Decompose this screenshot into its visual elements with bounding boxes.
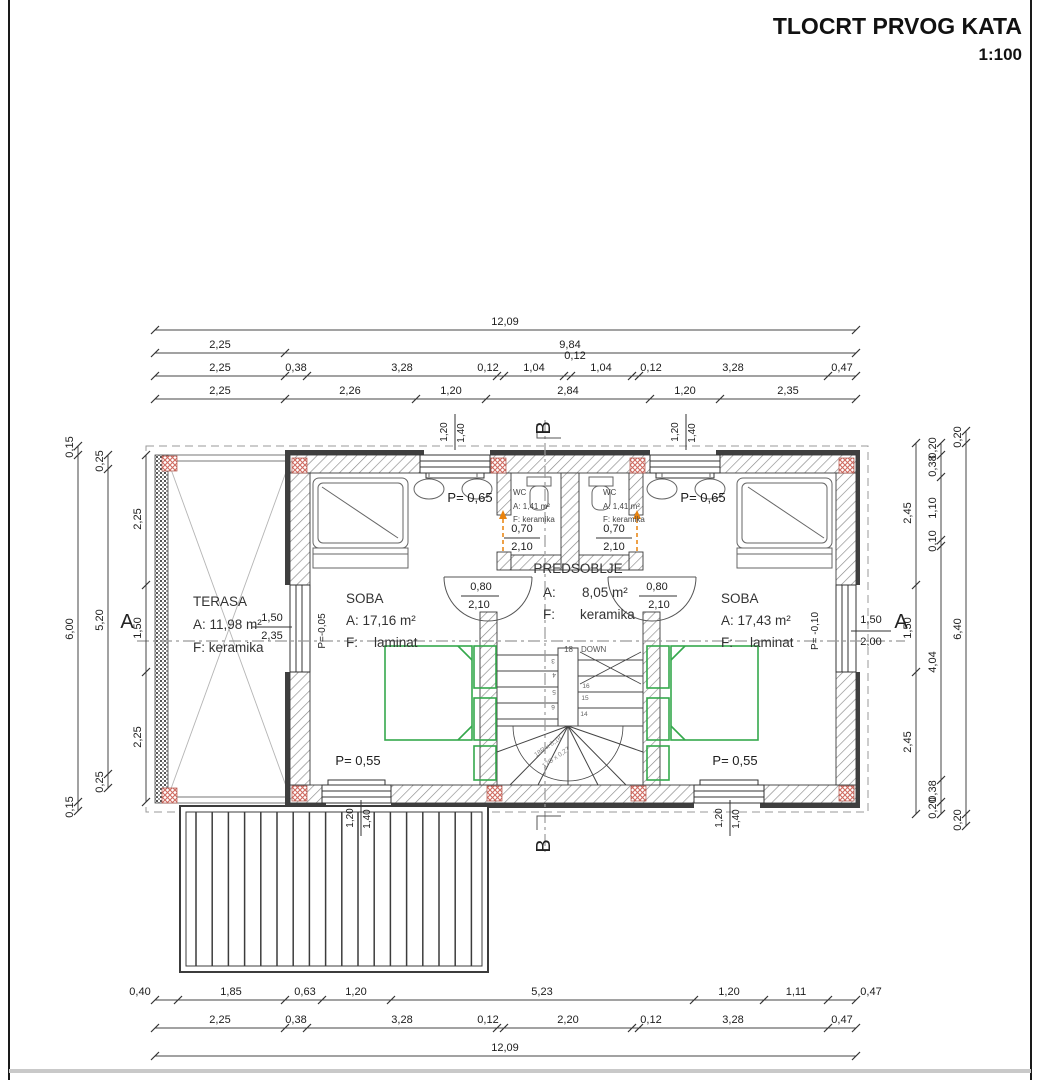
dim-chain: 0,206,400,20: [952, 426, 970, 830]
dim-label: 0,20: [952, 426, 964, 447]
dim-label: 1,20: [440, 385, 461, 397]
dim-label: 1,50: [860, 614, 881, 626]
bed-left: [385, 646, 496, 780]
stair-step-number: 14: [580, 711, 588, 718]
stair-count-label: 18: [564, 645, 573, 654]
dim-label: 0,12: [564, 350, 585, 362]
washbasin: [414, 479, 444, 499]
walls: [290, 455, 856, 803]
dim-chain: 2,259,84: [151, 339, 860, 357]
floor-plan-svg: TLOCRT PRVOG KATA 1:100: [0, 0, 1040, 1080]
section-marker-b-top: B: [533, 421, 555, 434]
dim-label: 1,20: [674, 385, 695, 397]
dim-label: 2,25: [132, 726, 144, 747]
dim-label: 2,00: [860, 636, 881, 648]
dim-label: 0,12: [477, 1014, 498, 1026]
dim-label: 2,84: [557, 385, 578, 397]
dim-label: 0,47: [831, 362, 852, 374]
dim-chain: 2,250,383,280,122,200,123,280,47: [151, 1014, 860, 1032]
room-area-soba-left: A: 17,16 m²: [346, 613, 416, 628]
dim-chain: 12,09: [151, 1042, 860, 1060]
dim-label: P= 0,55: [712, 753, 757, 768]
dim-chain: 2,451,502,45: [902, 439, 920, 818]
dim-label: 2,10: [468, 599, 489, 611]
dim-label: 0,12: [477, 362, 498, 374]
dim-label: 3,28: [391, 362, 412, 374]
stair-step-number: 4: [552, 671, 556, 678]
drawing-sheet: TLOCRT PRVOG KATA 1:100: [0, 0, 1040, 1080]
dim-label: P= -0,10: [810, 612, 821, 651]
drawing-title: TLOCRT PRVOG KATA: [773, 13, 1022, 39]
section-marker-b-bottom: B: [533, 839, 555, 852]
dim-label: 2,25: [209, 1014, 230, 1026]
toilet-left: [527, 477, 551, 486]
dim-label: 1,85: [220, 986, 241, 998]
room-area-soba-right: A: 17,43 m²: [721, 613, 791, 628]
dim-label: 0,80: [470, 581, 491, 593]
dim-label: 6,40: [952, 618, 964, 639]
room-name-soba-right: SOBA: [721, 591, 759, 606]
dim-label: 1,20: [718, 986, 739, 998]
dim-label: P= 0,65: [447, 490, 492, 505]
dim-label: 0,70: [603, 523, 624, 535]
dim-chain: 0,255,200,25: [94, 450, 112, 792]
dim-label: 2,20: [557, 1014, 578, 1026]
dim-label: 1,40: [687, 423, 698, 443]
room-floor-terasa: F: keramika: [193, 640, 264, 655]
dim-label: 0,20: [952, 809, 964, 830]
dim-label: 2,45: [902, 502, 914, 523]
dim-label: P= 0,55: [335, 753, 380, 768]
dim-label: 2,10: [511, 541, 532, 553]
dim-label: 0,47: [831, 1014, 852, 1026]
dim-label: 2,26: [339, 385, 360, 397]
dim-chain: 2,251,502,25: [132, 451, 150, 806]
room-area-wc-right: A: 1,41 m²: [603, 502, 640, 511]
predsoblje-area: 8,05 m²: [582, 585, 628, 600]
dim-label: 5,23: [531, 986, 552, 998]
dim-chain: 0,401,850,631,205,231,201,110,47: [129, 986, 881, 1004]
dim-label: 5,20: [94, 609, 106, 630]
washbasin: [647, 479, 677, 499]
predsoblje-floor-label: F:: [543, 607, 555, 622]
dim-chain: 0,156,000,15: [64, 436, 82, 817]
room-area-terasa: A: 11,98 m²: [193, 617, 262, 632]
dim-label: 1,50: [132, 617, 144, 638]
predsoblje-area-label: A:: [543, 585, 556, 600]
dim-label: 0,12: [640, 1014, 661, 1026]
dim-label: 0,15: [64, 436, 76, 457]
dim-label: 6,00: [64, 618, 76, 639]
room-name-wc-left: WC: [513, 488, 527, 497]
dim-label: 1,20: [345, 808, 356, 828]
dim-label: 1,50: [902, 617, 914, 638]
room-area-wc-left: A: 1,41 m²: [513, 502, 550, 511]
dim-label: 1,40: [362, 809, 373, 829]
room-floor-label-soba-right: F:: [721, 635, 733, 650]
dim-label: 1,04: [590, 362, 611, 374]
dim-label: 1,20: [714, 808, 725, 828]
dim-label: 1,50: [261, 612, 282, 624]
dim-label: 1,11: [786, 986, 807, 998]
room-name-terasa: TERASA: [193, 594, 247, 609]
dim-label: 2,25: [209, 362, 230, 374]
dim-label: 2,25: [209, 385, 230, 397]
dim-label: 1,40: [731, 809, 742, 829]
room-floor-soba-left: laminat: [374, 635, 418, 650]
dim-label: 0,25: [94, 450, 106, 471]
stair-down-label: DOWN: [581, 645, 607, 654]
dim-label: 3,28: [722, 1014, 743, 1026]
dim-label: 3,28: [722, 362, 743, 374]
dim-label: 0,25: [94, 771, 106, 792]
dim-label: 0,38: [285, 1014, 306, 1026]
dim-label: 3,28: [391, 1014, 412, 1026]
dim-label: 1,20: [345, 986, 366, 998]
dim-label: 2,25: [209, 339, 230, 351]
dim-chain: 2,250,383,280,121,040,121,040,123,280,47: [151, 350, 860, 380]
dim-label: 2,35: [777, 385, 798, 397]
dim-label: 1,20: [439, 422, 450, 442]
dim-label: 0,38: [285, 362, 306, 374]
stair-step-number: 15: [581, 695, 589, 702]
dim-label: 2,10: [648, 599, 669, 611]
dim-label: 1,40: [456, 423, 467, 443]
dim-chain: 12,09: [151, 316, 860, 334]
dim-label: 1,04: [523, 362, 544, 374]
stair-step-number: 5: [552, 688, 556, 695]
room-floor-soba-right: laminat: [750, 635, 794, 650]
toilet-right: [589, 477, 613, 486]
bathtub-right: [737, 478, 832, 548]
staircase: [497, 648, 643, 785]
dim-label: 0,70: [511, 523, 532, 535]
room-name-soba-left: SOBA: [346, 591, 384, 606]
dim-label: 1,10: [927, 497, 939, 518]
dim-label: 12,09: [491, 1042, 519, 1054]
dim-chain: 0,200,381,100,104,040,380,20: [927, 437, 945, 818]
dim-chain: 2,252,261,202,841,202,35: [151, 385, 860, 403]
dim-label: 0,47: [860, 986, 881, 998]
dim-label: 2,45: [902, 731, 914, 752]
room-name-predsoblje: PREDSOBLJE: [533, 561, 622, 576]
dim-label: 0,40: [129, 986, 150, 998]
dim-label: 2,10: [603, 541, 624, 553]
dim-label: 2,25: [132, 508, 144, 529]
dim-label: P=-0,05: [317, 613, 328, 649]
dim-label: 4,04: [927, 651, 939, 672]
dim-label: 0,63: [294, 986, 315, 998]
dim-label: 1,20: [670, 422, 681, 442]
stair-step-number: 16: [582, 683, 590, 690]
dim-label: 0,10: [927, 530, 939, 551]
room-name-wc-right: WC: [603, 488, 617, 497]
stair-step-number: 3: [551, 657, 555, 664]
dim-label: P= 0,65: [680, 490, 725, 505]
dim-label: 2,35: [261, 630, 282, 642]
dim-label: 12,09: [491, 316, 519, 328]
room-floor-label-soba-left: F:: [346, 635, 358, 650]
dim-label: 0,38: [927, 455, 939, 476]
stair-step-number: 6: [551, 703, 555, 710]
dim-label: 0,80: [646, 581, 667, 593]
dim-label: 0,12: [640, 362, 661, 374]
pergola: [180, 806, 488, 972]
drawing-scale: 1:100: [979, 45, 1022, 64]
dim-label: 0,15: [64, 796, 76, 817]
predsoblje-floor: keramika: [580, 607, 635, 622]
dim-label: 0,20: [927, 797, 939, 818]
